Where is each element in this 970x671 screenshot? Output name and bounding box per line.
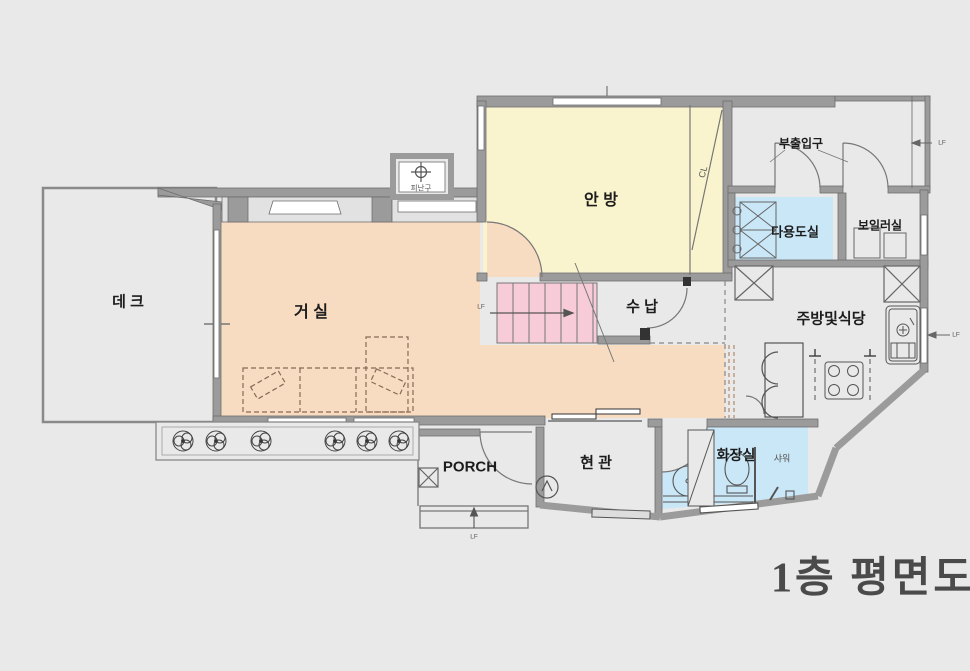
shoe-cabinet-icon bbox=[688, 430, 714, 506]
label-lf-porch: LF bbox=[470, 534, 478, 541]
column-icon bbox=[884, 266, 920, 302]
planter bbox=[156, 422, 419, 460]
label-escape-hatch: 피난구 bbox=[411, 183, 432, 194]
kitchen-sink-icon bbox=[886, 306, 920, 364]
living-room-floor bbox=[220, 222, 480, 418]
room-label-porch: PORCH bbox=[443, 459, 497, 476]
room-label-master: 안 방 bbox=[584, 186, 618, 210]
room-label-sub-entrance: 부출입구 bbox=[779, 135, 823, 152]
room-label-deck: 데 크 bbox=[112, 291, 144, 312]
room-label-kitchen: 주방및식당 bbox=[796, 308, 865, 329]
column-icon bbox=[735, 266, 773, 300]
label-lf-right: LF bbox=[952, 332, 960, 339]
counter-dashed bbox=[815, 350, 870, 400]
room-label-entrance: 현 관 bbox=[580, 452, 612, 473]
label-leader-1 bbox=[770, 150, 785, 162]
sub-entrance-door-2 bbox=[843, 143, 888, 188]
room-label-boiler: 보일러실 bbox=[858, 217, 902, 234]
room-label-living: 거 실 bbox=[294, 298, 328, 322]
floor-plan: 데 크 거 실 안 방 수 납 다용도실 보일러실 주방및식당 부출입구 현 관… bbox=[0, 0, 970, 671]
entrance-step bbox=[592, 509, 650, 519]
label-lf-stairs: LF bbox=[477, 304, 485, 311]
room-label-storage: 수 납 bbox=[626, 296, 658, 317]
counter-fittings bbox=[809, 349, 876, 356]
label-lf-topright: LF bbox=[938, 140, 946, 147]
stove-icon bbox=[825, 362, 863, 399]
room-label-utility: 다용도실 bbox=[771, 222, 819, 241]
drawing-title: 1층 평면도 bbox=[771, 544, 970, 605]
label-shower: 샤워 bbox=[774, 452, 791, 465]
living-room-floor-ext bbox=[480, 345, 725, 418]
kitchen-passage-door-arc bbox=[746, 396, 764, 414]
room-label-bath: 화장실 bbox=[717, 445, 756, 465]
column-icon bbox=[419, 468, 438, 487]
floor-finish-boundary bbox=[729, 345, 734, 418]
